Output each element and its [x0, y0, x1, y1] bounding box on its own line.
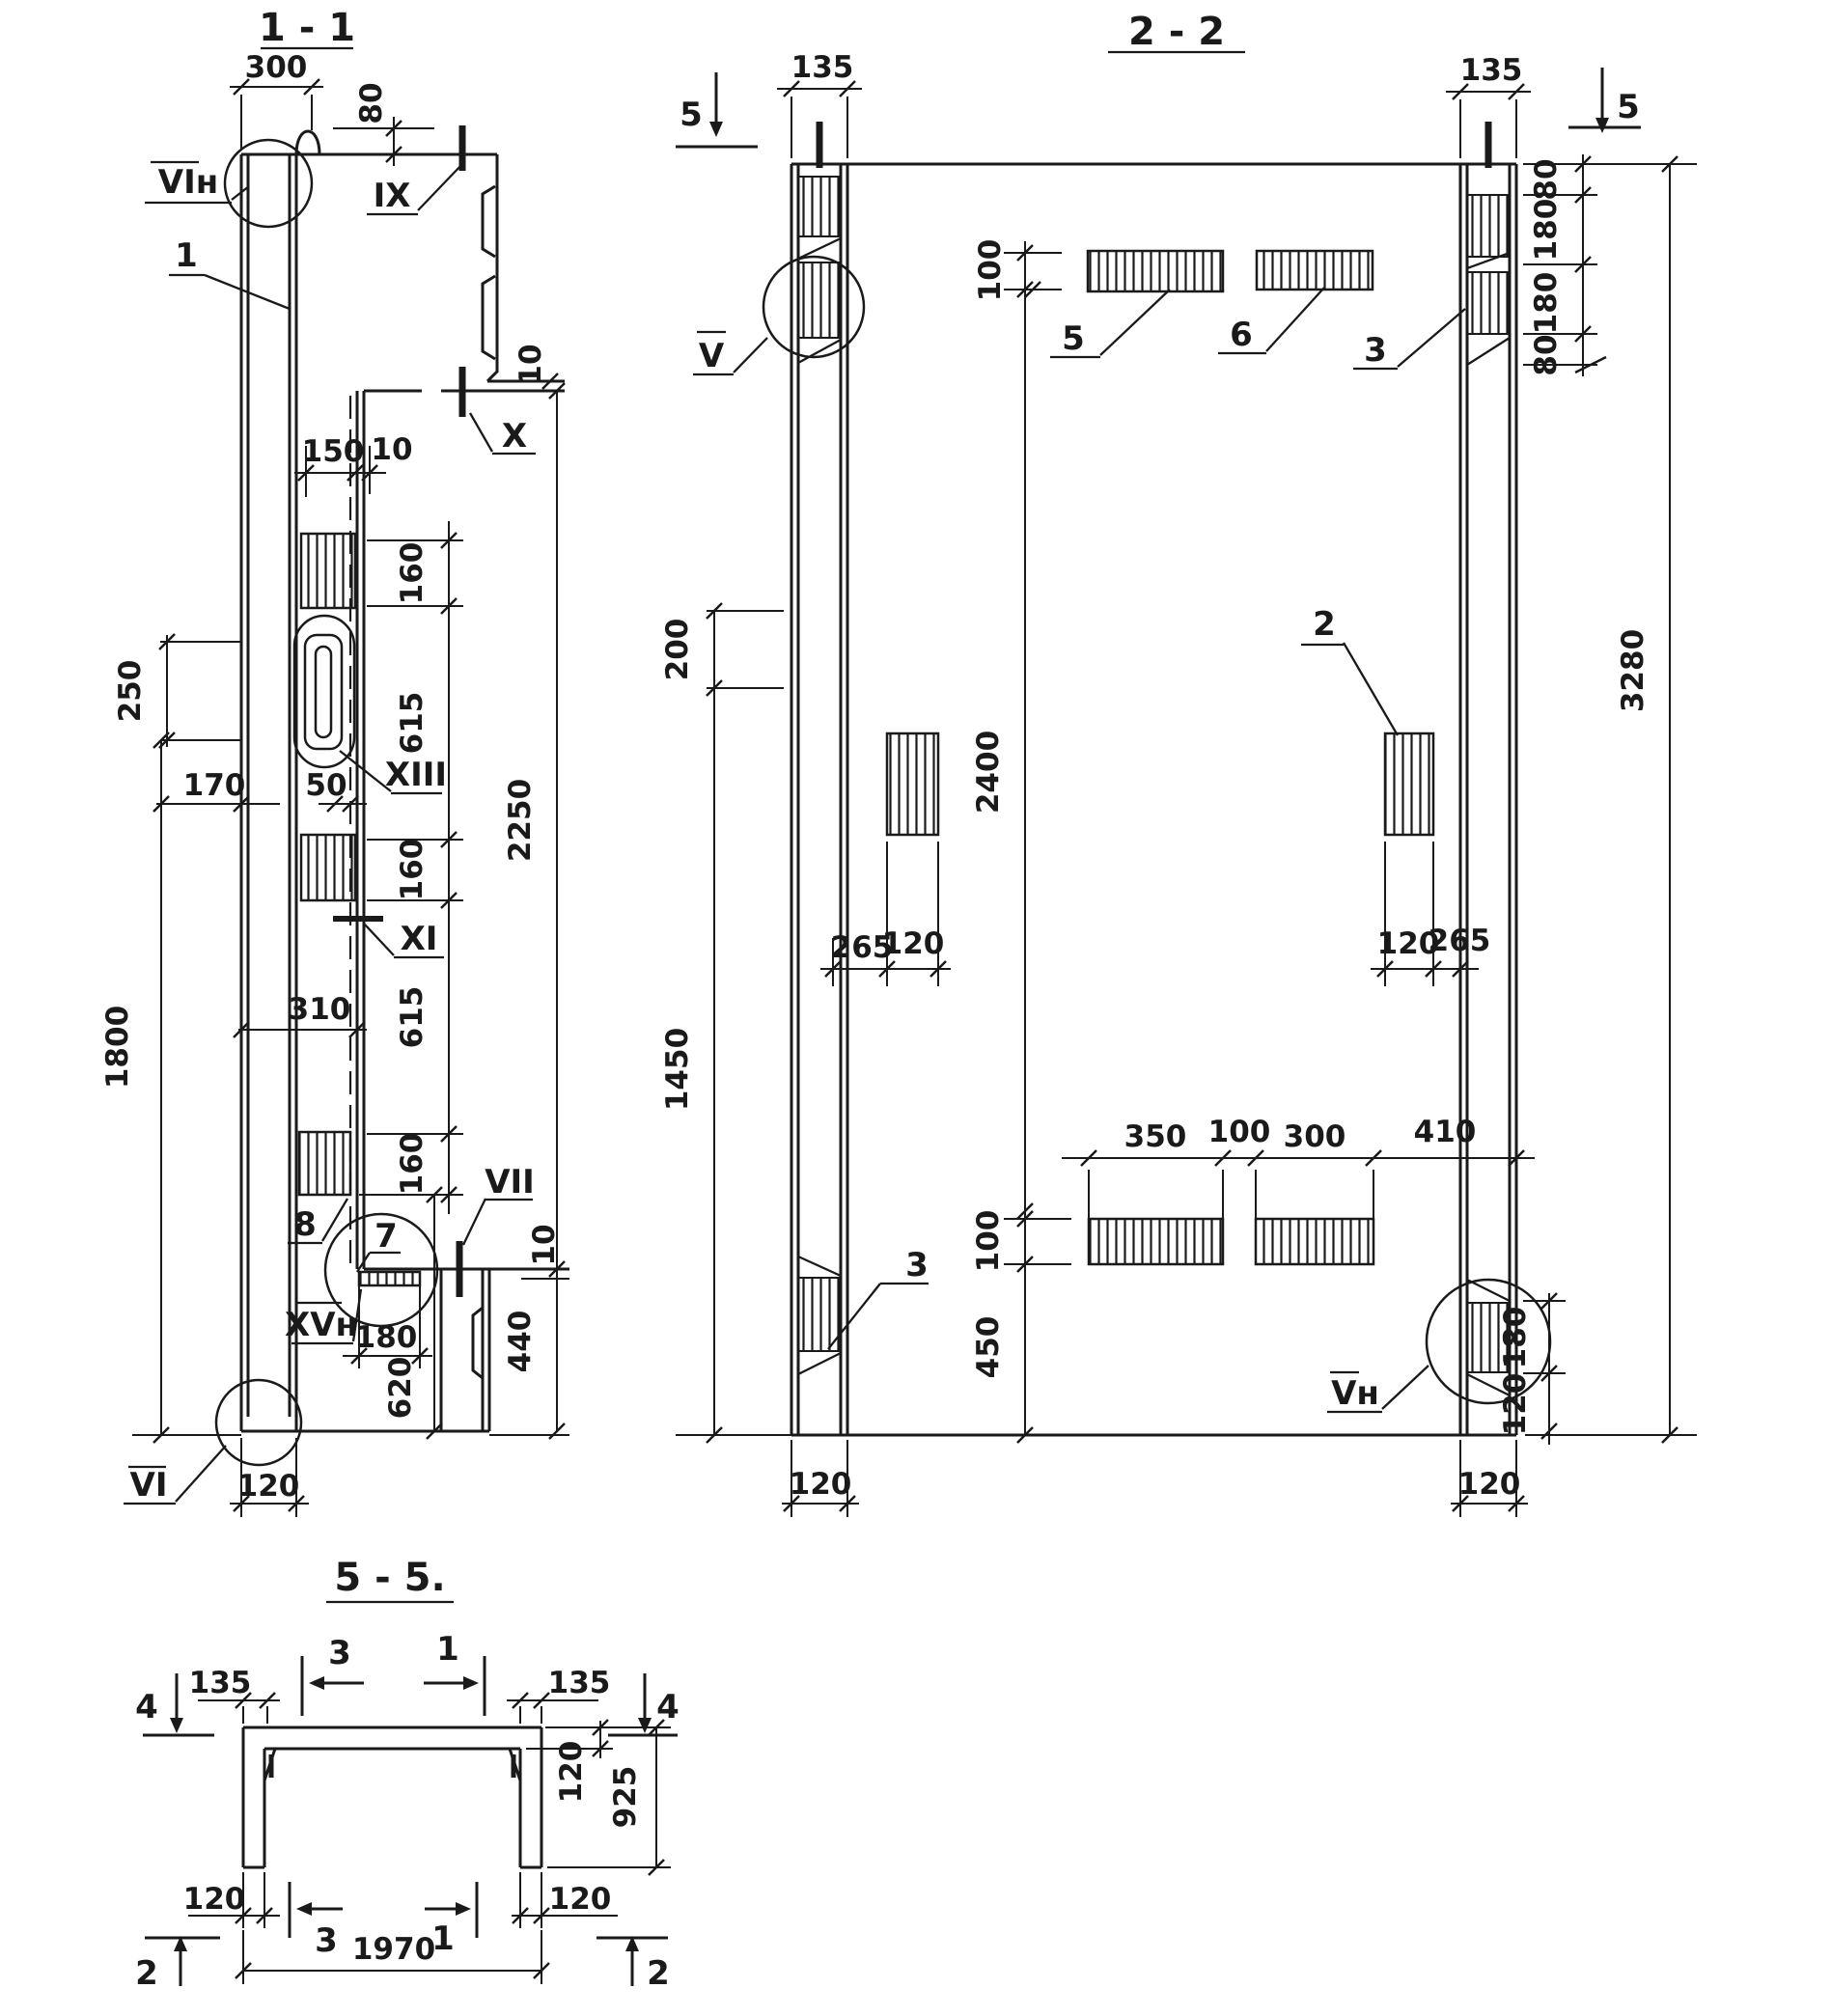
s11-dim-310: 310: [289, 992, 351, 1027]
s22-left-rib-hatch-1: [798, 177, 841, 236]
s22-plate-5: [1088, 251, 1223, 291]
s22-plate-low-right: [1256, 1219, 1373, 1264]
s22-dim-80-b: 80: [1529, 334, 1564, 375]
s22-dim-450: 450: [971, 1316, 1006, 1379]
s22-label-vn: Vн: [1331, 1374, 1379, 1413]
s22-label-3-bottom: 3: [905, 1246, 929, 1284]
s11-dim-10-top: 10: [513, 344, 548, 385]
s55-outline: [243, 1727, 541, 1867]
s22-label-2: 2: [1313, 605, 1336, 644]
s11-label-vii: VII: [485, 1163, 535, 1201]
s22-cut-bars: [819, 122, 1488, 168]
s22-dim-200: 200: [660, 619, 695, 681]
s55-dim-120-flange: 120: [554, 1741, 589, 1804]
s11-label-1: 1: [175, 236, 198, 275]
s11-dim-10-rib: 10: [371, 432, 412, 467]
s22-dim-410: 410: [1414, 1115, 1477, 1149]
s11-dim-2250: 2250: [503, 779, 538, 862]
s22-dim-120-mid-left: 120: [882, 926, 945, 961]
s11-embed-plate-a: [301, 534, 355, 608]
section-5-5: 5 - 5. 4 135 3 1 135 4 120 925 120 3 1 1…: [135, 1556, 680, 1993]
s22-dim-100-top: 100: [973, 239, 1008, 302]
s55-marker-1-top: 1: [436, 1630, 459, 1669]
s11-embed-plate-b: [301, 835, 355, 900]
s22-dim-100-lower: 100: [971, 1210, 1006, 1273]
s11-dim-300: 300: [245, 50, 308, 85]
s11-dim-80: 80: [354, 82, 389, 124]
s11-dim-620: 620: [383, 1357, 418, 1420]
s11-dim-615-a: 615: [395, 692, 430, 755]
s11-label-x: X: [502, 417, 527, 456]
s22-dim-135-left: 135: [791, 50, 854, 85]
s11-dim-250: 250: [113, 660, 148, 723]
s22-dim-180-low: 180: [1498, 1307, 1533, 1369]
s55-dim-925: 925: [608, 1766, 643, 1829]
s22-dim-100-chain: 100: [1208, 1115, 1271, 1149]
s22-right-rib-hatch-2: [1467, 272, 1510, 334]
s22-dim-135-right: 135: [1460, 53, 1523, 88]
drawing-page: 1 - 1 300 80 VIн IX 1 10 X 150 10 160 61…: [0, 0, 1831, 2011]
s11-dim-440: 440: [503, 1311, 538, 1373]
s11-label-xi: XI: [401, 920, 438, 958]
s22-dim-120-low: 120: [1498, 1373, 1533, 1436]
s55-dim-1970: 1970: [352, 1932, 435, 1967]
s22-label-3-top: 3: [1364, 331, 1387, 370]
section-2-2: 2 - 2 5 135 135 5 100 5 6 3 V 80 180 180…: [660, 10, 1697, 1517]
s22-dim-300: 300: [1284, 1119, 1346, 1154]
s22-marker-arrowheads: [709, 118, 1609, 137]
s11-label-vi-bottom: VI: [130, 1466, 168, 1505]
s55-dim-120-leg-left: 120: [183, 1882, 246, 1917]
s22-dim-180-b: 180: [1529, 272, 1564, 335]
s11-dim-10-step: 10: [527, 1224, 562, 1265]
s22-dim-3280: 3280: [1616, 629, 1651, 712]
s11-weld-strip: [359, 1272, 420, 1285]
s22-marker-5-right: 5: [1617, 88, 1640, 126]
s22-dim-180-a: 180: [1529, 199, 1564, 262]
s22-plate-mid-left: [887, 733, 938, 835]
s11-dim-180: 180: [355, 1320, 418, 1355]
s55-dim-135-left: 135: [189, 1666, 252, 1700]
s22-label-plate5: 5: [1062, 319, 1085, 358]
s55-marker-2-right: 2: [647, 1954, 670, 1993]
s55-marker-4-left: 4: [135, 1688, 158, 1726]
s11-dim-160-a: 160: [395, 542, 430, 605]
s22-marker-5-left: 5: [680, 96, 703, 134]
s22-right-rib-hatch-1: [1467, 195, 1510, 257]
s11-label-vi-top: VIн: [158, 163, 218, 202]
s22-label-v: V: [699, 337, 725, 375]
technical-drawing: 1 - 1 300 80 VIн IX 1 10 X 150 10 160 61…: [0, 0, 1831, 2011]
s55-dim-120-leg-right: 120: [549, 1882, 612, 1917]
s11-lifting-slot: [294, 616, 354, 767]
s11-dim-120: 120: [237, 1469, 300, 1504]
s55-marker-2-left: 2: [135, 1954, 158, 1993]
s11-cut-bars: [459, 125, 462, 1297]
s55-marker-3-top: 3: [328, 1634, 351, 1672]
s55-dim-135-right: 135: [548, 1666, 611, 1700]
s22-dim-120-bottom-right: 120: [1458, 1467, 1521, 1502]
s22-dim-350: 350: [1124, 1119, 1187, 1154]
s22-label-plate6: 6: [1230, 316, 1253, 354]
s22-plate-6: [1257, 251, 1373, 290]
s22-dim-2400: 2400: [971, 731, 1006, 814]
s22-dim-1450: 1450: [660, 1028, 695, 1111]
s11-embed-plate-c: [299, 1132, 350, 1195]
s22-title: 2 - 2: [1128, 10, 1225, 54]
s11-label-xv: XVн: [285, 1306, 358, 1344]
s55-marker-4-right: 4: [656, 1688, 680, 1726]
s11-dim-170: 170: [183, 768, 246, 803]
s11-label-ix: IX: [374, 177, 411, 215]
s55-title: 5 - 5.: [334, 1556, 445, 1600]
s11-label-8: 8: [293, 1205, 317, 1244]
s22-left-rib-hatch-2: [798, 262, 841, 338]
s55-marker-3-bottom: 3: [315, 1921, 338, 1960]
s22-dim-80-a: 80: [1529, 158, 1564, 200]
s11-label-xiii: XIII: [385, 756, 447, 794]
s11-dim-160-b: 160: [395, 839, 430, 901]
s11-dim-150: 150: [302, 434, 365, 469]
s55-corner-bars: [271, 1754, 513, 1778]
detail-circle-vi-bottom: [216, 1380, 301, 1465]
s11-dim-1800: 1800: [100, 1006, 135, 1089]
s11-dim-615-b: 615: [395, 986, 430, 1049]
s22-dim-265-right: 265: [1429, 924, 1491, 958]
section-1-1: 1 - 1 300 80 VIн IX 1 10 X 150 10 160 61…: [100, 6, 569, 1517]
s11-title: 1 - 1: [259, 6, 355, 50]
s22-plate-2: [1385, 733, 1433, 835]
s11-dim-160-c: 160: [395, 1133, 430, 1196]
s22-plate-low-left: [1089, 1219, 1223, 1264]
s11-label-7: 7: [375, 1217, 398, 1256]
s22-dim-120-bottom-left: 120: [790, 1467, 852, 1502]
s11-dim-50: 50: [305, 768, 347, 803]
